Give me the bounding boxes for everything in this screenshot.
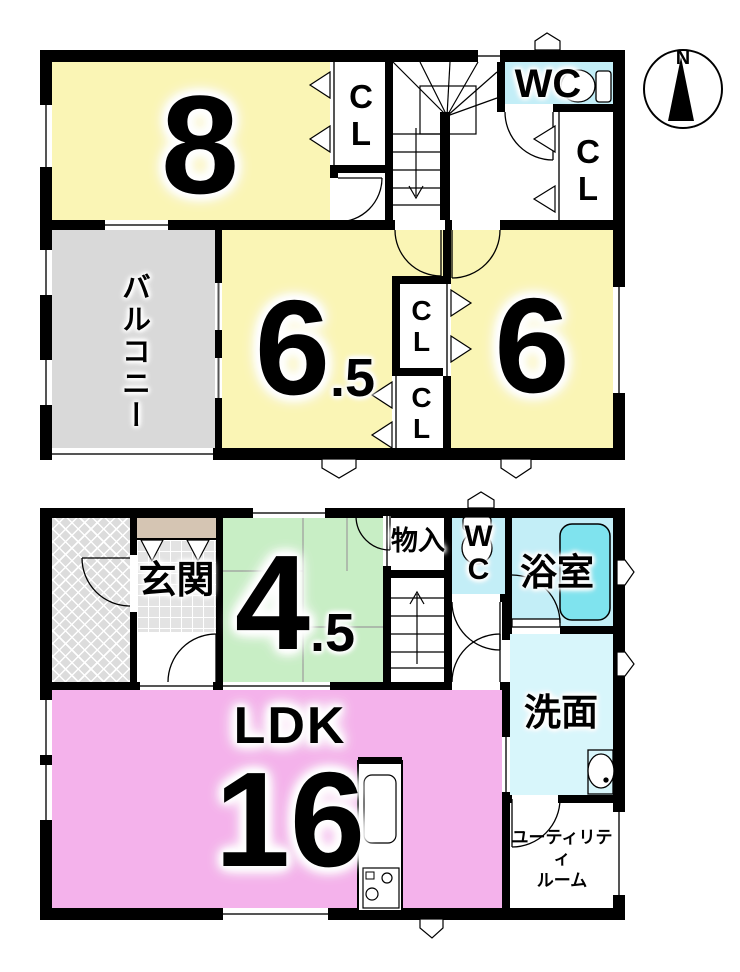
room-4-5-label: 4 .5 [215, 530, 375, 670]
wall [130, 612, 137, 682]
wall [502, 602, 510, 640]
wall [497, 104, 505, 112]
window [40, 700, 52, 755]
wall [385, 62, 393, 220]
wall [213, 682, 223, 690]
closet-door [330, 62, 338, 165]
room-6-label: 6 [462, 280, 602, 410]
balcony-label: バルコニー [116, 262, 150, 442]
room-6-5-fraction: .5 [330, 351, 375, 405]
closet-door [443, 284, 451, 376]
monoire-label: 物入 [391, 524, 445, 558]
wall [443, 230, 451, 284]
wall [440, 112, 450, 220]
wall [383, 566, 391, 682]
room-4-5-fraction: .5 [310, 606, 355, 660]
ldk-label: LDK 16 [70, 698, 510, 888]
wall [500, 220, 613, 230]
sliding-door [140, 682, 213, 690]
utility-label: ユーティリティ ルーム [506, 835, 618, 883]
wc-1f-label: WC [462, 520, 494, 586]
window [215, 283, 222, 330]
window [105, 220, 168, 230]
wall [40, 220, 105, 230]
window [40, 360, 52, 405]
wall [443, 376, 451, 448]
closet-a-label: CL [344, 80, 378, 150]
closet-c-label: CL [406, 295, 436, 357]
floor-plan: 8 6 .5 6 バルコニー WC CL CL CL CL [0, 0, 740, 972]
wall [40, 508, 625, 518]
wall [330, 165, 393, 173]
genkan-label: 玄関 [137, 560, 216, 602]
closet-b-label: CL [571, 135, 605, 205]
closet-d-label: CL [406, 383, 436, 443]
wall [330, 165, 338, 178]
room-6-5-size: 6 [255, 280, 330, 415]
closet-door [383, 516, 391, 566]
wall [558, 795, 625, 803]
compass-north-label: N [676, 47, 690, 70]
window [40, 250, 52, 295]
wall [444, 594, 452, 602]
room-4-5-size: 4 [235, 535, 310, 670]
window [478, 50, 500, 62]
wall [40, 50, 625, 62]
wall [215, 220, 222, 283]
wall [500, 682, 510, 690]
room-6-5-label: 6 .5 [235, 275, 395, 415]
wall [215, 330, 222, 358]
wall [613, 50, 625, 460]
porch [52, 518, 130, 682]
wall [383, 570, 452, 578]
wall [330, 682, 452, 690]
window [52, 448, 213, 460]
bathroom-label: 浴室 [512, 552, 602, 592]
wall [40, 908, 625, 920]
window [215, 358, 222, 398]
room-8-label: 8 [120, 80, 280, 210]
ldk-size: 16 [215, 752, 365, 887]
window [253, 508, 325, 518]
wall [130, 508, 137, 555]
window [613, 287, 625, 393]
window [40, 105, 52, 167]
wall [215, 398, 222, 448]
wall [40, 682, 140, 690]
staircase-1f [391, 592, 444, 668]
genkan-cabinet [137, 516, 216, 540]
washroom-label: 洗面 [516, 692, 606, 732]
sliding-door [223, 682, 330, 690]
closet-door [555, 112, 563, 220]
wall [445, 220, 452, 230]
compass: N [643, 49, 723, 129]
window [223, 908, 328, 920]
wc-2f-label: WC [513, 64, 583, 104]
wall [560, 626, 625, 634]
wall [383, 508, 391, 516]
window [40, 765, 52, 820]
